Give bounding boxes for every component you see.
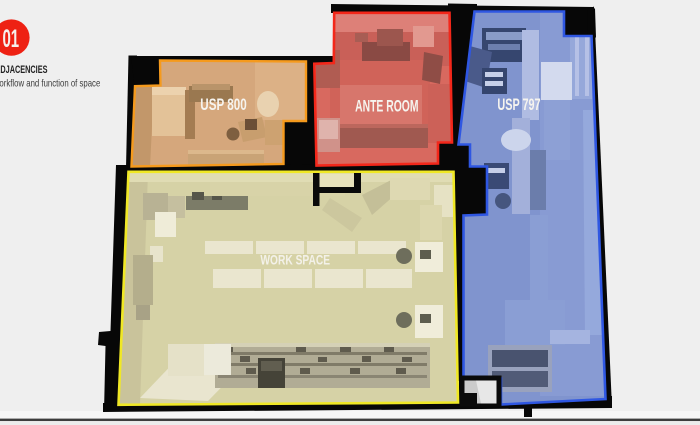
svg-text:USP 797: USP 797 [497, 96, 540, 114]
svg-text:ADJACENCIES: ADJACENCIES [0, 64, 47, 76]
svg-text:ANTE ROOM: ANTE ROOM [355, 97, 418, 115]
svg-text:workflow and function of space: workflow and function of space [0, 77, 100, 88]
svg-text:USP 800: USP 800 [200, 95, 247, 113]
svg-text:01: 01 [2, 25, 19, 53]
svg-text:WORK SPACE: WORK SPACE [260, 252, 330, 268]
